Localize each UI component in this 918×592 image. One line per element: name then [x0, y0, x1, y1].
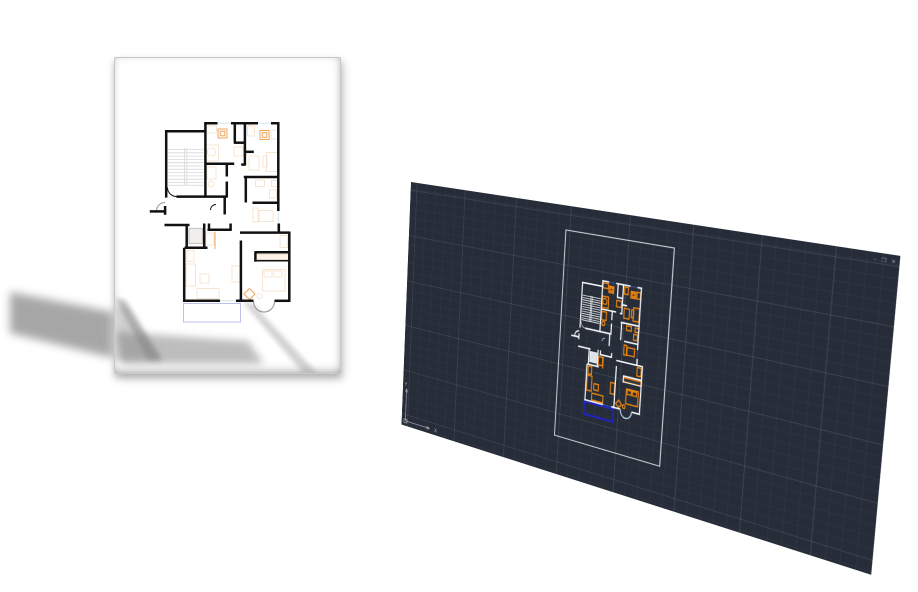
svg-text:Y: Y — [404, 381, 407, 388]
svg-text:X: X — [434, 427, 437, 434]
